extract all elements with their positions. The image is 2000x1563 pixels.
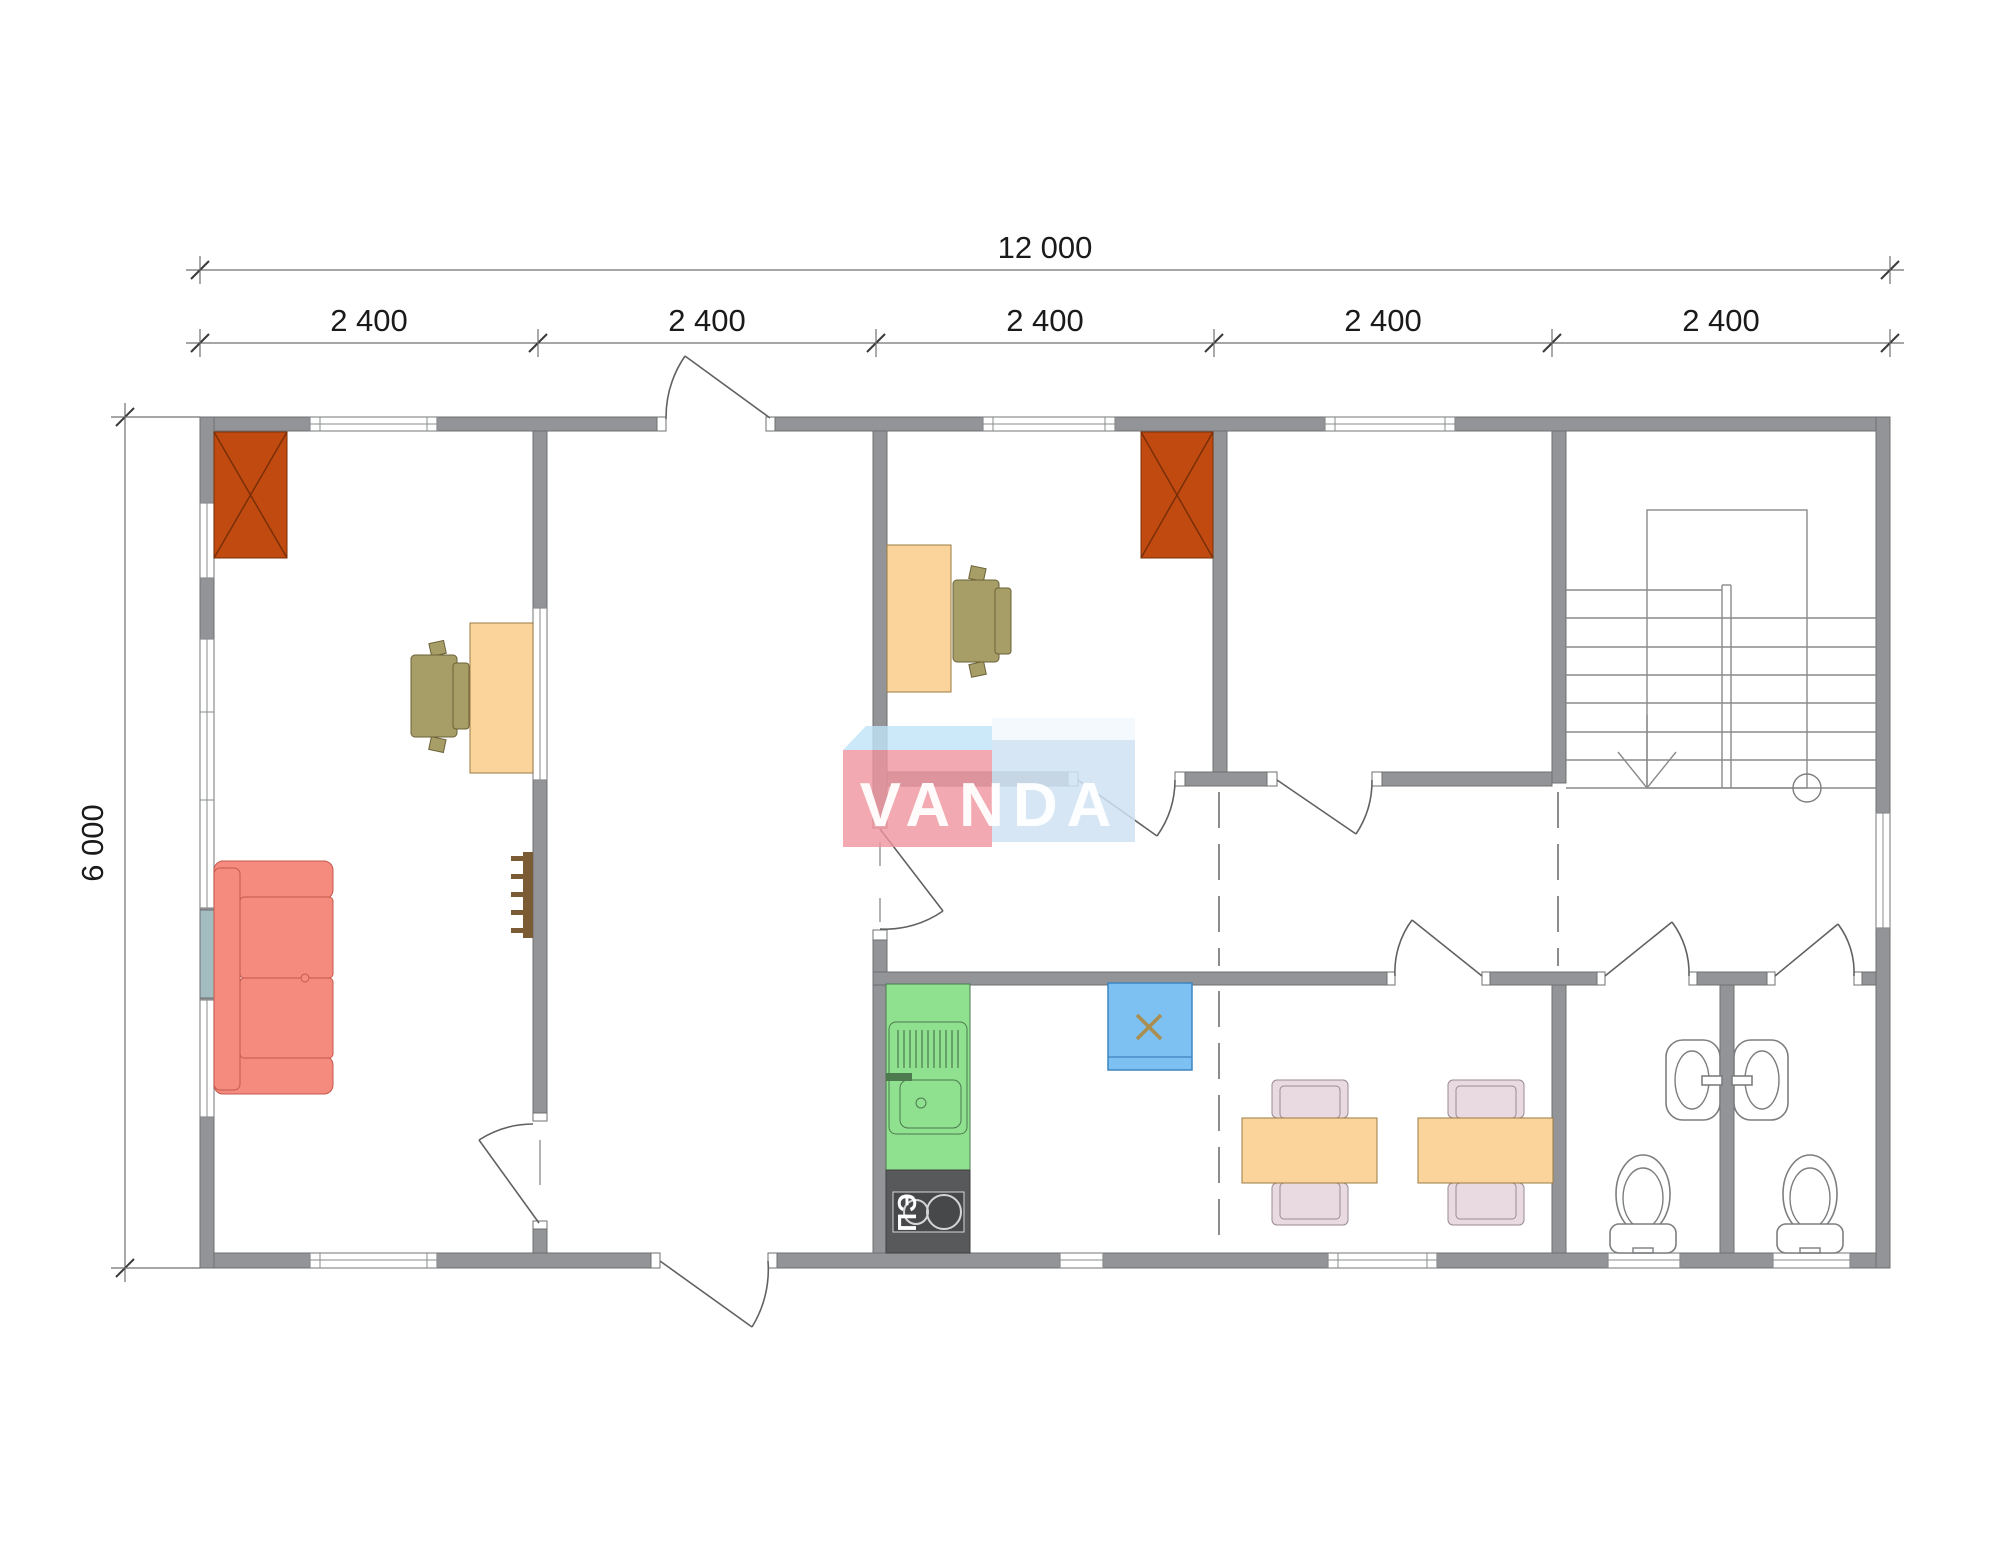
window — [1773, 1253, 1850, 1268]
wash-basin-right — [1732, 1040, 1788, 1120]
toilet-left — [1610, 1155, 1676, 1253]
window — [1328, 1253, 1437, 1268]
dining-set-2 — [1418, 1080, 1553, 1225]
floor-plan-drawing: 12 000 2 400 2 400 2 400 2 400 2 400 6 0… — [0, 0, 2000, 1563]
dimension-total-height: 6 000 — [75, 403, 200, 1282]
floor-plan-canvas: 12 000 2 400 2 400 2 400 2 400 2 400 6 0… — [0, 0, 2000, 1563]
dim-segment-label: 2 400 — [1682, 303, 1760, 338]
stove-label: ПЭ — [892, 1192, 922, 1231]
sofa — [214, 861, 333, 1094]
watermark-logo: VANDA — [843, 718, 1135, 847]
window — [310, 1253, 437, 1268]
wall-pier — [200, 910, 214, 998]
door-dining — [1395, 920, 1482, 976]
windows — [200, 417, 1890, 1268]
toilet-right — [1777, 1155, 1843, 1253]
dim-segment-label: 2 400 — [1006, 303, 1084, 338]
dining-table-2 — [1418, 1118, 1553, 1183]
stairs-down-arrow-icon — [1618, 715, 1676, 788]
window — [983, 417, 1115, 431]
door-room4 — [1277, 780, 1372, 834]
logo-flap-left — [843, 726, 992, 750]
door-room1 — [479, 1124, 540, 1223]
desk-1 — [470, 623, 533, 773]
door-wc-right — [1775, 924, 1854, 976]
window — [1608, 1253, 1680, 1268]
electric-stove: ПЭ — [886, 1170, 970, 1253]
dim-segment-label: 2 400 — [1344, 303, 1422, 338]
fireplace-1 — [214, 432, 287, 558]
window — [200, 503, 214, 578]
kitchen-sink-counter — [886, 984, 970, 1170]
dim-segment-label: 2 400 — [330, 303, 408, 338]
outer-walls — [200, 417, 1890, 1268]
desk-2 — [887, 545, 951, 692]
office-chair-1 — [411, 640, 469, 752]
stairs — [1566, 510, 1876, 802]
glass-partition — [533, 608, 547, 780]
dim-height-label: 6 000 — [75, 804, 110, 882]
window — [1060, 1253, 1103, 1268]
dimension-segments: 2 400 2 400 2 400 2 400 2 400 — [186, 303, 1904, 357]
coat-hooks — [511, 852, 533, 938]
window — [200, 1000, 214, 1117]
entry-door-bottom — [660, 1261, 768, 1327]
wash-basin-left — [1666, 1040, 1722, 1120]
dim-segment-label: 2 400 — [668, 303, 746, 338]
dining-table-1 — [1242, 1118, 1377, 1183]
dim-total-label: 12 000 — [998, 230, 1093, 265]
window — [1325, 417, 1455, 431]
logo-text: VANDA — [860, 771, 1121, 840]
window — [310, 417, 437, 431]
dining-set-1 — [1242, 1080, 1377, 1225]
door-wc-left — [1605, 922, 1689, 976]
window — [1876, 813, 1890, 928]
office-chair-2 — [953, 566, 1011, 678]
logo-box-blue-top — [992, 718, 1135, 740]
dimension-total-width: 12 000 — [186, 230, 1904, 284]
entry-door-top — [666, 356, 770, 419]
water-heater — [1108, 983, 1192, 1070]
window — [200, 639, 214, 908]
fireplace-2 — [1141, 432, 1213, 558]
